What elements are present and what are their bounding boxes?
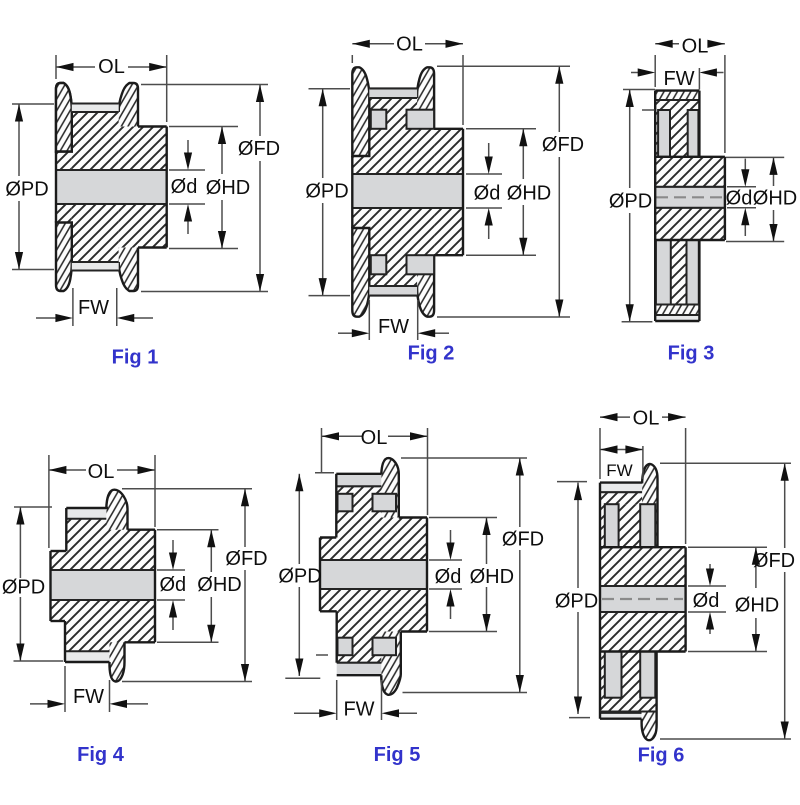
svg-text:ØHD: ØHD <box>735 595 779 617</box>
svg-text:Fig 2: Fig 2 <box>408 343 455 365</box>
svg-text:FW: FW <box>378 316 409 338</box>
svg-text:Fig 1: Fig 1 <box>112 347 159 369</box>
svg-text:Ød: Ød <box>159 574 186 596</box>
svg-text:ØHD: ØHD <box>206 177 250 199</box>
svg-text:ØPD: ØPD <box>305 181 348 203</box>
svg-text:FW: FW <box>73 686 104 708</box>
svg-text:ØPD: ØPD <box>2 577 45 599</box>
svg-text:Fig 6: Fig 6 <box>638 745 685 767</box>
svg-text:Ød: Ød <box>474 183 501 205</box>
svg-text:FW: FW <box>343 699 374 721</box>
svg-text:ØPD: ØPD <box>555 591 598 613</box>
svg-text:FW: FW <box>663 68 694 90</box>
svg-text:ØFD: ØFD <box>238 138 280 160</box>
svg-text:Ød: Ød <box>171 176 198 198</box>
svg-text:Fig 4: Fig 4 <box>77 744 125 766</box>
svg-text:FW: FW <box>606 461 632 480</box>
svg-text:OL: OL <box>396 34 423 56</box>
svg-text:ØPD: ØPD <box>278 566 321 588</box>
svg-text:ØHD: ØHD <box>197 574 241 596</box>
svg-text:ØPD: ØPD <box>5 179 48 201</box>
svg-text:OL: OL <box>88 461 115 483</box>
svg-text:Ød: Ød <box>726 188 753 210</box>
svg-text:OL: OL <box>361 427 388 449</box>
svg-text:OL: OL <box>682 36 709 58</box>
svg-text:ØHD: ØHD <box>507 183 551 205</box>
svg-text:Fig 5: Fig 5 <box>374 744 421 766</box>
svg-text:ØPD: ØPD <box>609 191 652 213</box>
svg-text:Ød: Ød <box>693 590 720 612</box>
svg-text:OL: OL <box>633 408 660 430</box>
svg-text:Ød: Ød <box>435 566 462 588</box>
svg-text:FW: FW <box>78 297 109 319</box>
svg-text:ØFD: ØFD <box>225 548 267 570</box>
svg-text:Fig 3: Fig 3 <box>668 343 715 365</box>
svg-text:OL: OL <box>98 56 125 78</box>
svg-text:ØFD: ØFD <box>502 529 544 551</box>
svg-text:ØHD: ØHD <box>470 566 514 588</box>
svg-text:ØHD: ØHD <box>753 188 797 210</box>
svg-text:ØFD: ØFD <box>542 134 584 156</box>
svg-text:ØFD: ØFD <box>753 550 795 572</box>
